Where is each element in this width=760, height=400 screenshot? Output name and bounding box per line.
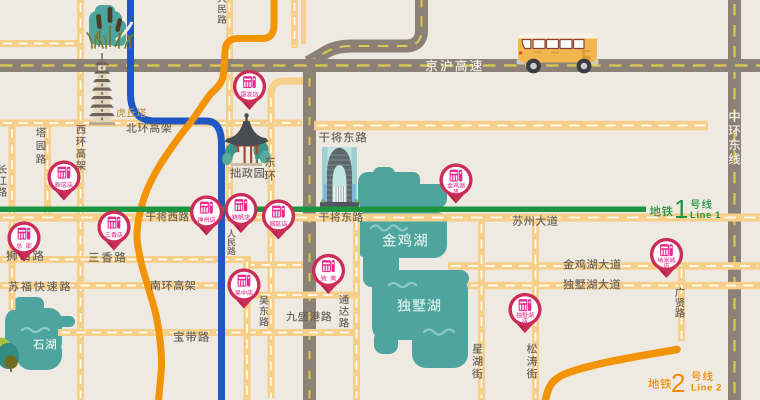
svg-text:Line 2: Line 2 <box>691 383 722 394</box>
svg-text:1: 1 <box>674 194 688 224</box>
svg-text:Line 1: Line 1 <box>690 210 721 221</box>
svg-text:2: 2 <box>671 368 685 398</box>
